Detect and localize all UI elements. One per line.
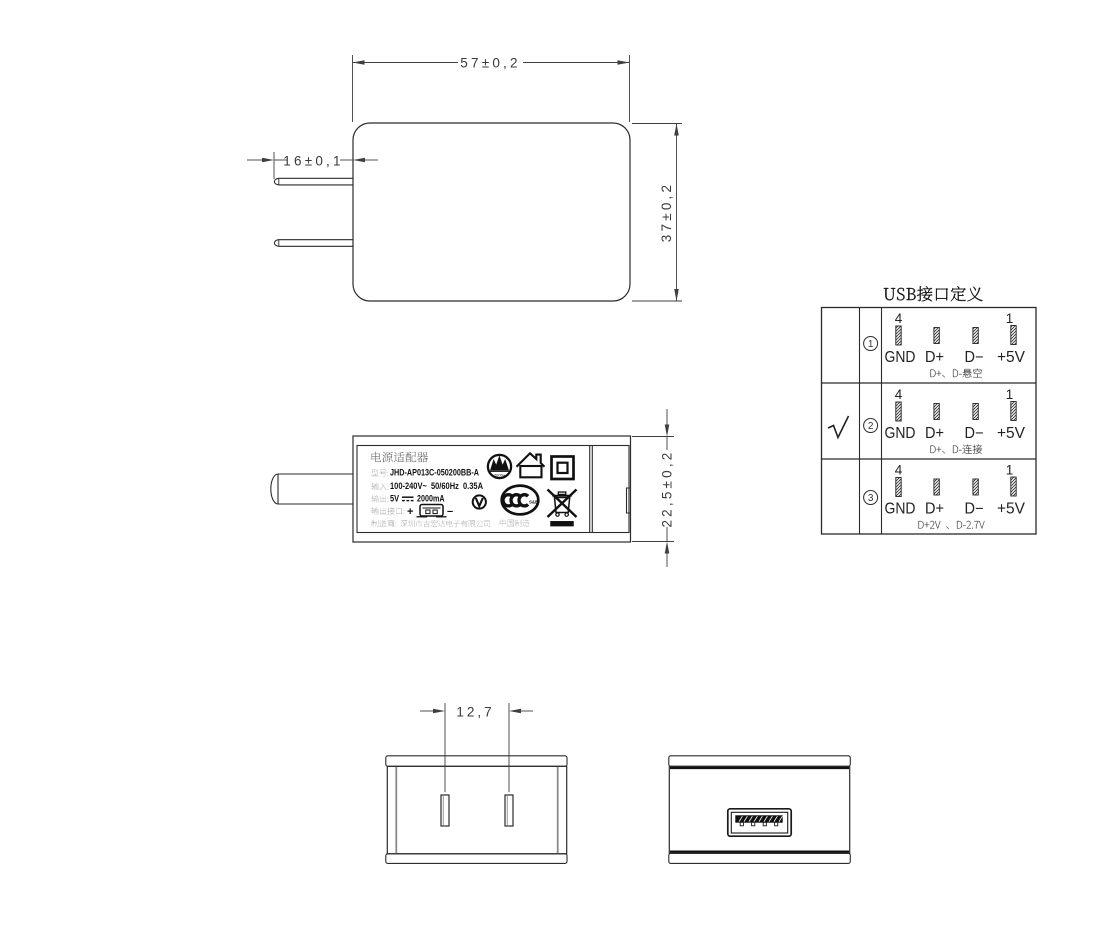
svg-text:D+: D+ bbox=[925, 349, 944, 366]
svg-text:+5V: +5V bbox=[997, 425, 1026, 442]
svg-text:4: 4 bbox=[895, 311, 903, 326]
svg-text:37±0,2: 37±0,2 bbox=[659, 182, 674, 242]
svg-text:1: 1 bbox=[868, 339, 874, 350]
svg-text:D−: D− bbox=[965, 501, 984, 518]
svg-text:1: 1 bbox=[1006, 463, 1014, 478]
svg-text:16±0,1: 16±0,1 bbox=[283, 153, 343, 168]
svg-text:–: – bbox=[447, 506, 453, 518]
svg-text:5V: 5V bbox=[390, 493, 400, 503]
svg-text:22,5±0,2: 22,5±0,2 bbox=[660, 449, 675, 527]
svg-text:100-240V~ 50/60Hz 0.35A: 100-240V~ 50/60Hz 0.35A bbox=[390, 481, 483, 491]
svg-text:1: 1 bbox=[1006, 387, 1014, 402]
svg-text:4: 4 bbox=[895, 387, 903, 402]
svg-text:2: 2 bbox=[868, 421, 874, 432]
svg-text:D−: D− bbox=[965, 425, 984, 442]
svg-text:+5V: +5V bbox=[997, 349, 1026, 366]
svg-text:D+: D+ bbox=[925, 425, 944, 442]
svg-text:GND: GND bbox=[885, 349, 916, 366]
svg-text:12,7: 12,7 bbox=[456, 705, 494, 720]
svg-text:D−: D− bbox=[965, 349, 984, 366]
svg-text:GND: GND bbox=[885, 425, 916, 442]
svg-text:57±0,2: 57±0,2 bbox=[460, 56, 520, 71]
svg-text:S&E: S&E bbox=[529, 500, 538, 505]
svg-text:+: + bbox=[407, 506, 413, 518]
svg-text:JHD-AP013C-050200BB-A: JHD-AP013C-050200BB-A bbox=[390, 468, 479, 478]
svg-text:2000a: 2000a bbox=[494, 473, 506, 478]
svg-text:GND: GND bbox=[885, 501, 916, 518]
svg-text:3: 3 bbox=[868, 493, 874, 504]
svg-text:1: 1 bbox=[1006, 311, 1014, 326]
svg-text:D+: D+ bbox=[925, 501, 944, 518]
svg-text:4: 4 bbox=[895, 463, 903, 478]
svg-text:+5V: +5V bbox=[997, 501, 1026, 518]
svg-text:2000mA: 2000mA bbox=[417, 493, 445, 503]
